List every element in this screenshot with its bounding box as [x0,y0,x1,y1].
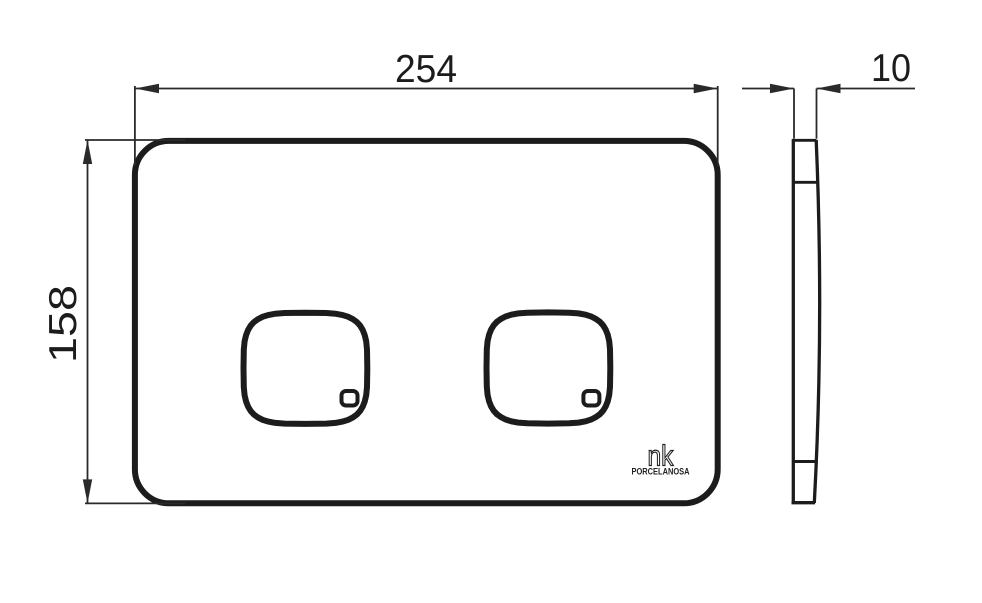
svg-text:10: 10 [871,47,911,90]
svg-text:PORCELANOSA: PORCELANOSA [632,467,690,477]
svg-text:158: 158 [42,285,85,363]
svg-text:254: 254 [395,48,457,91]
